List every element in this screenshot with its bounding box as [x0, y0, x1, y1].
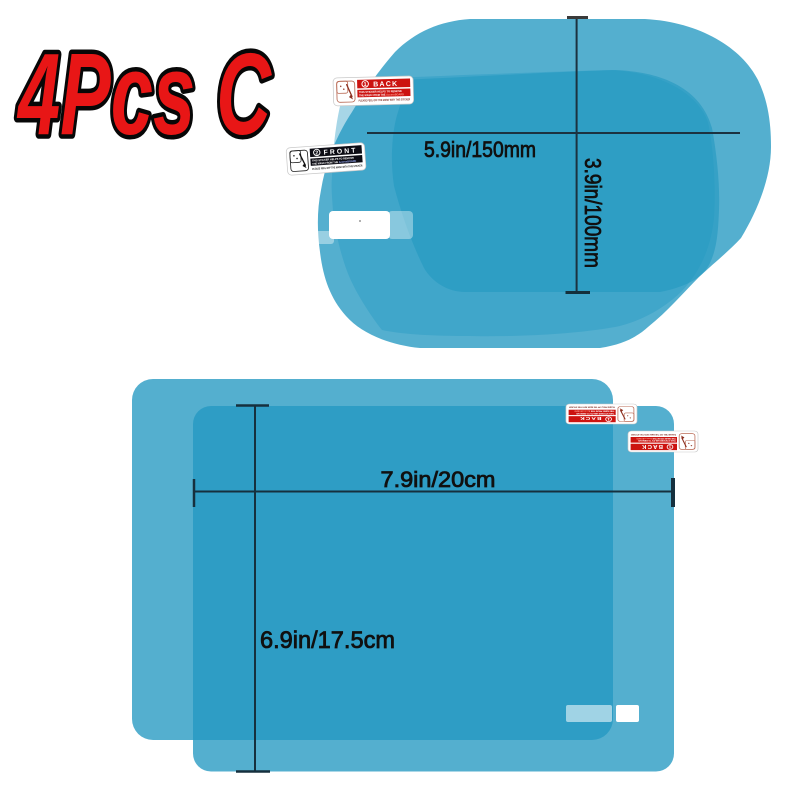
svg-text:6.9in/17.5cm: 6.9in/17.5cm: [260, 627, 395, 654]
svg-text:7.9in/20cm: 7.9in/20cm: [381, 467, 496, 492]
svg-text:3.9in/100mm: 3.9in/100mm: [580, 158, 606, 268]
svg-text:5.9in/150mm: 5.9in/150mm: [424, 137, 536, 162]
svg-text:4Pcs C: 4Pcs C: [17, 29, 273, 159]
